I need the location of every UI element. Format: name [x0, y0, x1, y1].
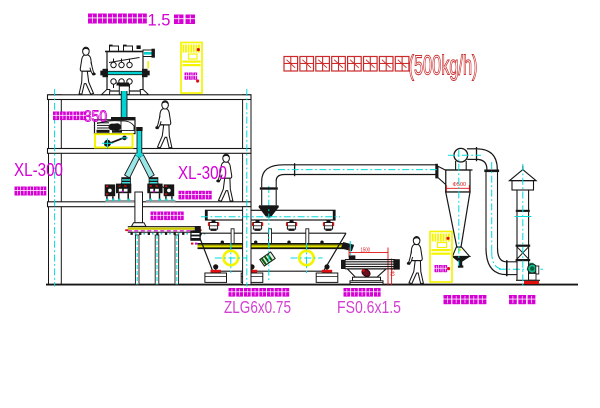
svg-text:(500kg/h): (500kg/h) [409, 50, 478, 81]
svg-text:1500: 1500 [361, 248, 371, 254]
svg-text:FS0.6x1.5: FS0.6x1.5 [337, 297, 401, 317]
svg-text:1.5: 1.5 [148, 11, 171, 30]
svg-text:XL-300: XL-300 [14, 159, 63, 180]
svg-text:350: 350 [84, 109, 107, 126]
svg-text:ZLG6x0.75: ZLG6x0.75 [224, 297, 291, 317]
svg-text:XL-300: XL-300 [178, 162, 227, 183]
